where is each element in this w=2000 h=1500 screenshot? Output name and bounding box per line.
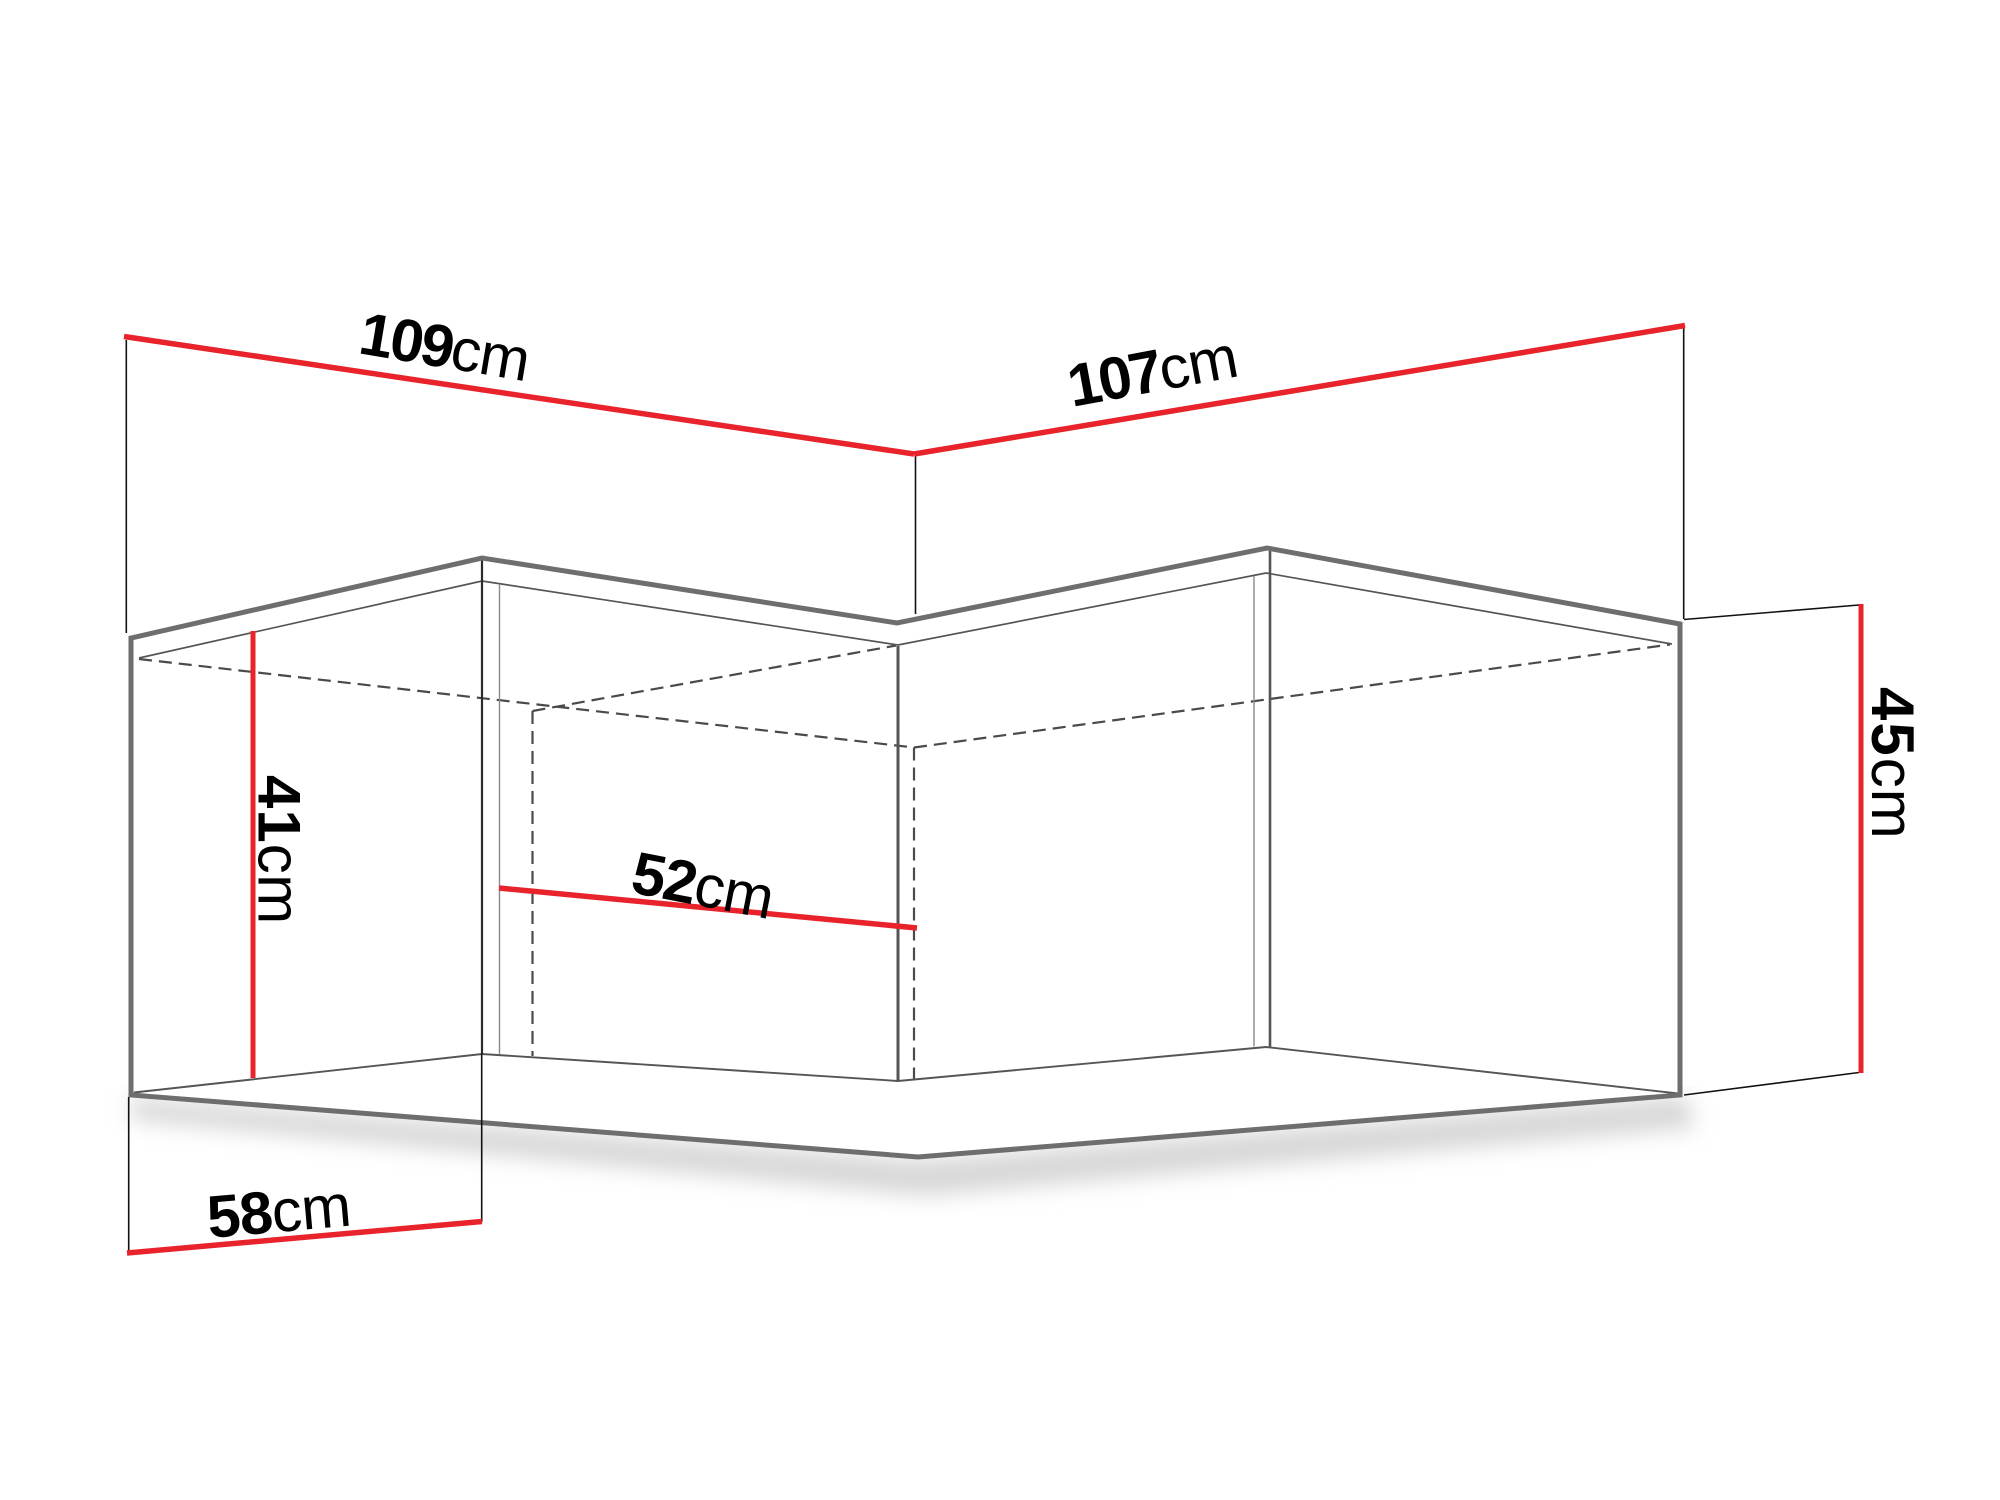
svg-text:45cm: 45cm [1859, 687, 1926, 840]
svg-text:58cm: 58cm [204, 1172, 353, 1251]
svg-text:41cm: 41cm [246, 775, 313, 925]
